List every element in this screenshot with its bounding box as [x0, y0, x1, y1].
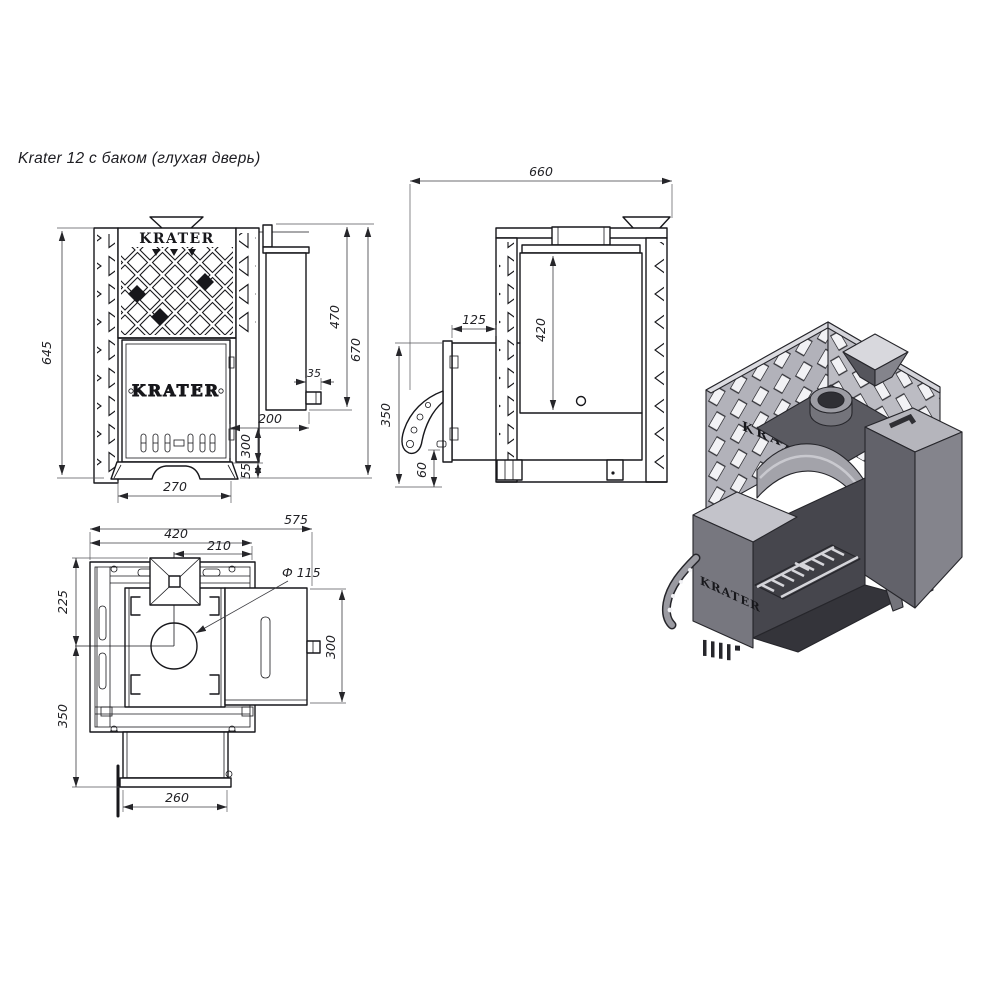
dim-side-overall-depth: 660: [529, 164, 553, 179]
front-door-brand: KRATER: [132, 381, 220, 400]
dim-side-tank-width: 420: [533, 318, 548, 342]
dim-top-cage-width: 420: [164, 526, 188, 541]
dim-top-tank-depth: 300: [323, 635, 338, 659]
side-tank-cap: [522, 245, 640, 253]
front-base: [111, 462, 238, 479]
dim-top-chimney-diameter: Ф 115: [282, 565, 321, 580]
front-stub-pipe: [263, 225, 272, 247]
dim-top-front-section: 225: [55, 590, 70, 614]
iso-door-handle: [666, 558, 696, 625]
side-view: 660 125 420 350 60: [378, 164, 672, 487]
dim-top-chimney-offset: 210: [207, 538, 231, 553]
front-tank-cap: [263, 247, 309, 253]
dim-front-tank-height: 470: [327, 305, 342, 329]
side-door-plate: [443, 341, 452, 462]
front-view: KRATER KRATER: [39, 217, 374, 503]
front-right-pillar-cutouts: [239, 233, 256, 333]
front-left-pillar-cutouts: [97, 234, 115, 477]
side-tank-top-box: [552, 227, 610, 245]
dim-top-door-width: 260: [165, 790, 189, 805]
iso-view: KRATER: [666, 322, 962, 660]
dim-top-overall-width: 575: [284, 512, 308, 527]
top-tank: [225, 588, 307, 705]
side-front-leg: [497, 460, 522, 480]
dim-side-bottom-clearance: 60: [414, 462, 429, 478]
side-rear-leg: [607, 460, 623, 480]
dim-side-door-offset: 125: [462, 312, 486, 327]
dim-top-rear-section: 350: [55, 704, 70, 728]
top-firebox: [125, 588, 225, 707]
front-funnel: [150, 217, 203, 229]
dim-front-cage-height: 645: [39, 341, 54, 365]
front-grill-brand: KRATER: [139, 231, 215, 247]
dim-front-overall-height: 670: [348, 338, 363, 362]
dim-front-base-width: 270: [163, 479, 187, 494]
dim-front-base-height: 55: [238, 463, 253, 479]
top-view: 575 420 210 225 350 300 260: [55, 512, 346, 816]
drawing-sheet: Krater 12 с баком (глухая дверь): [0, 0, 1000, 1000]
front-door: [122, 340, 230, 462]
technical-drawing: KRATER KRATER: [0, 0, 1000, 1000]
front-tank-outlet: [306, 392, 321, 404]
dim-front-tank-span: 200: [258, 411, 282, 426]
iso-water-tank: [865, 408, 962, 608]
dim-front-lower-zone: 300: [238, 434, 253, 458]
dim-front-outlet-width: 35: [307, 367, 321, 380]
dim-side-front-height: 350: [378, 403, 393, 427]
top-door-front-bar: [120, 778, 231, 787]
front-tank: [266, 253, 306, 410]
side-front-pillar-cutouts: [499, 242, 514, 478]
top-door: [123, 732, 228, 778]
iso-chimney-collar: [810, 387, 852, 426]
side-rear-pillar-cutouts: [649, 242, 664, 478]
top-tank-outlet: [307, 641, 320, 653]
